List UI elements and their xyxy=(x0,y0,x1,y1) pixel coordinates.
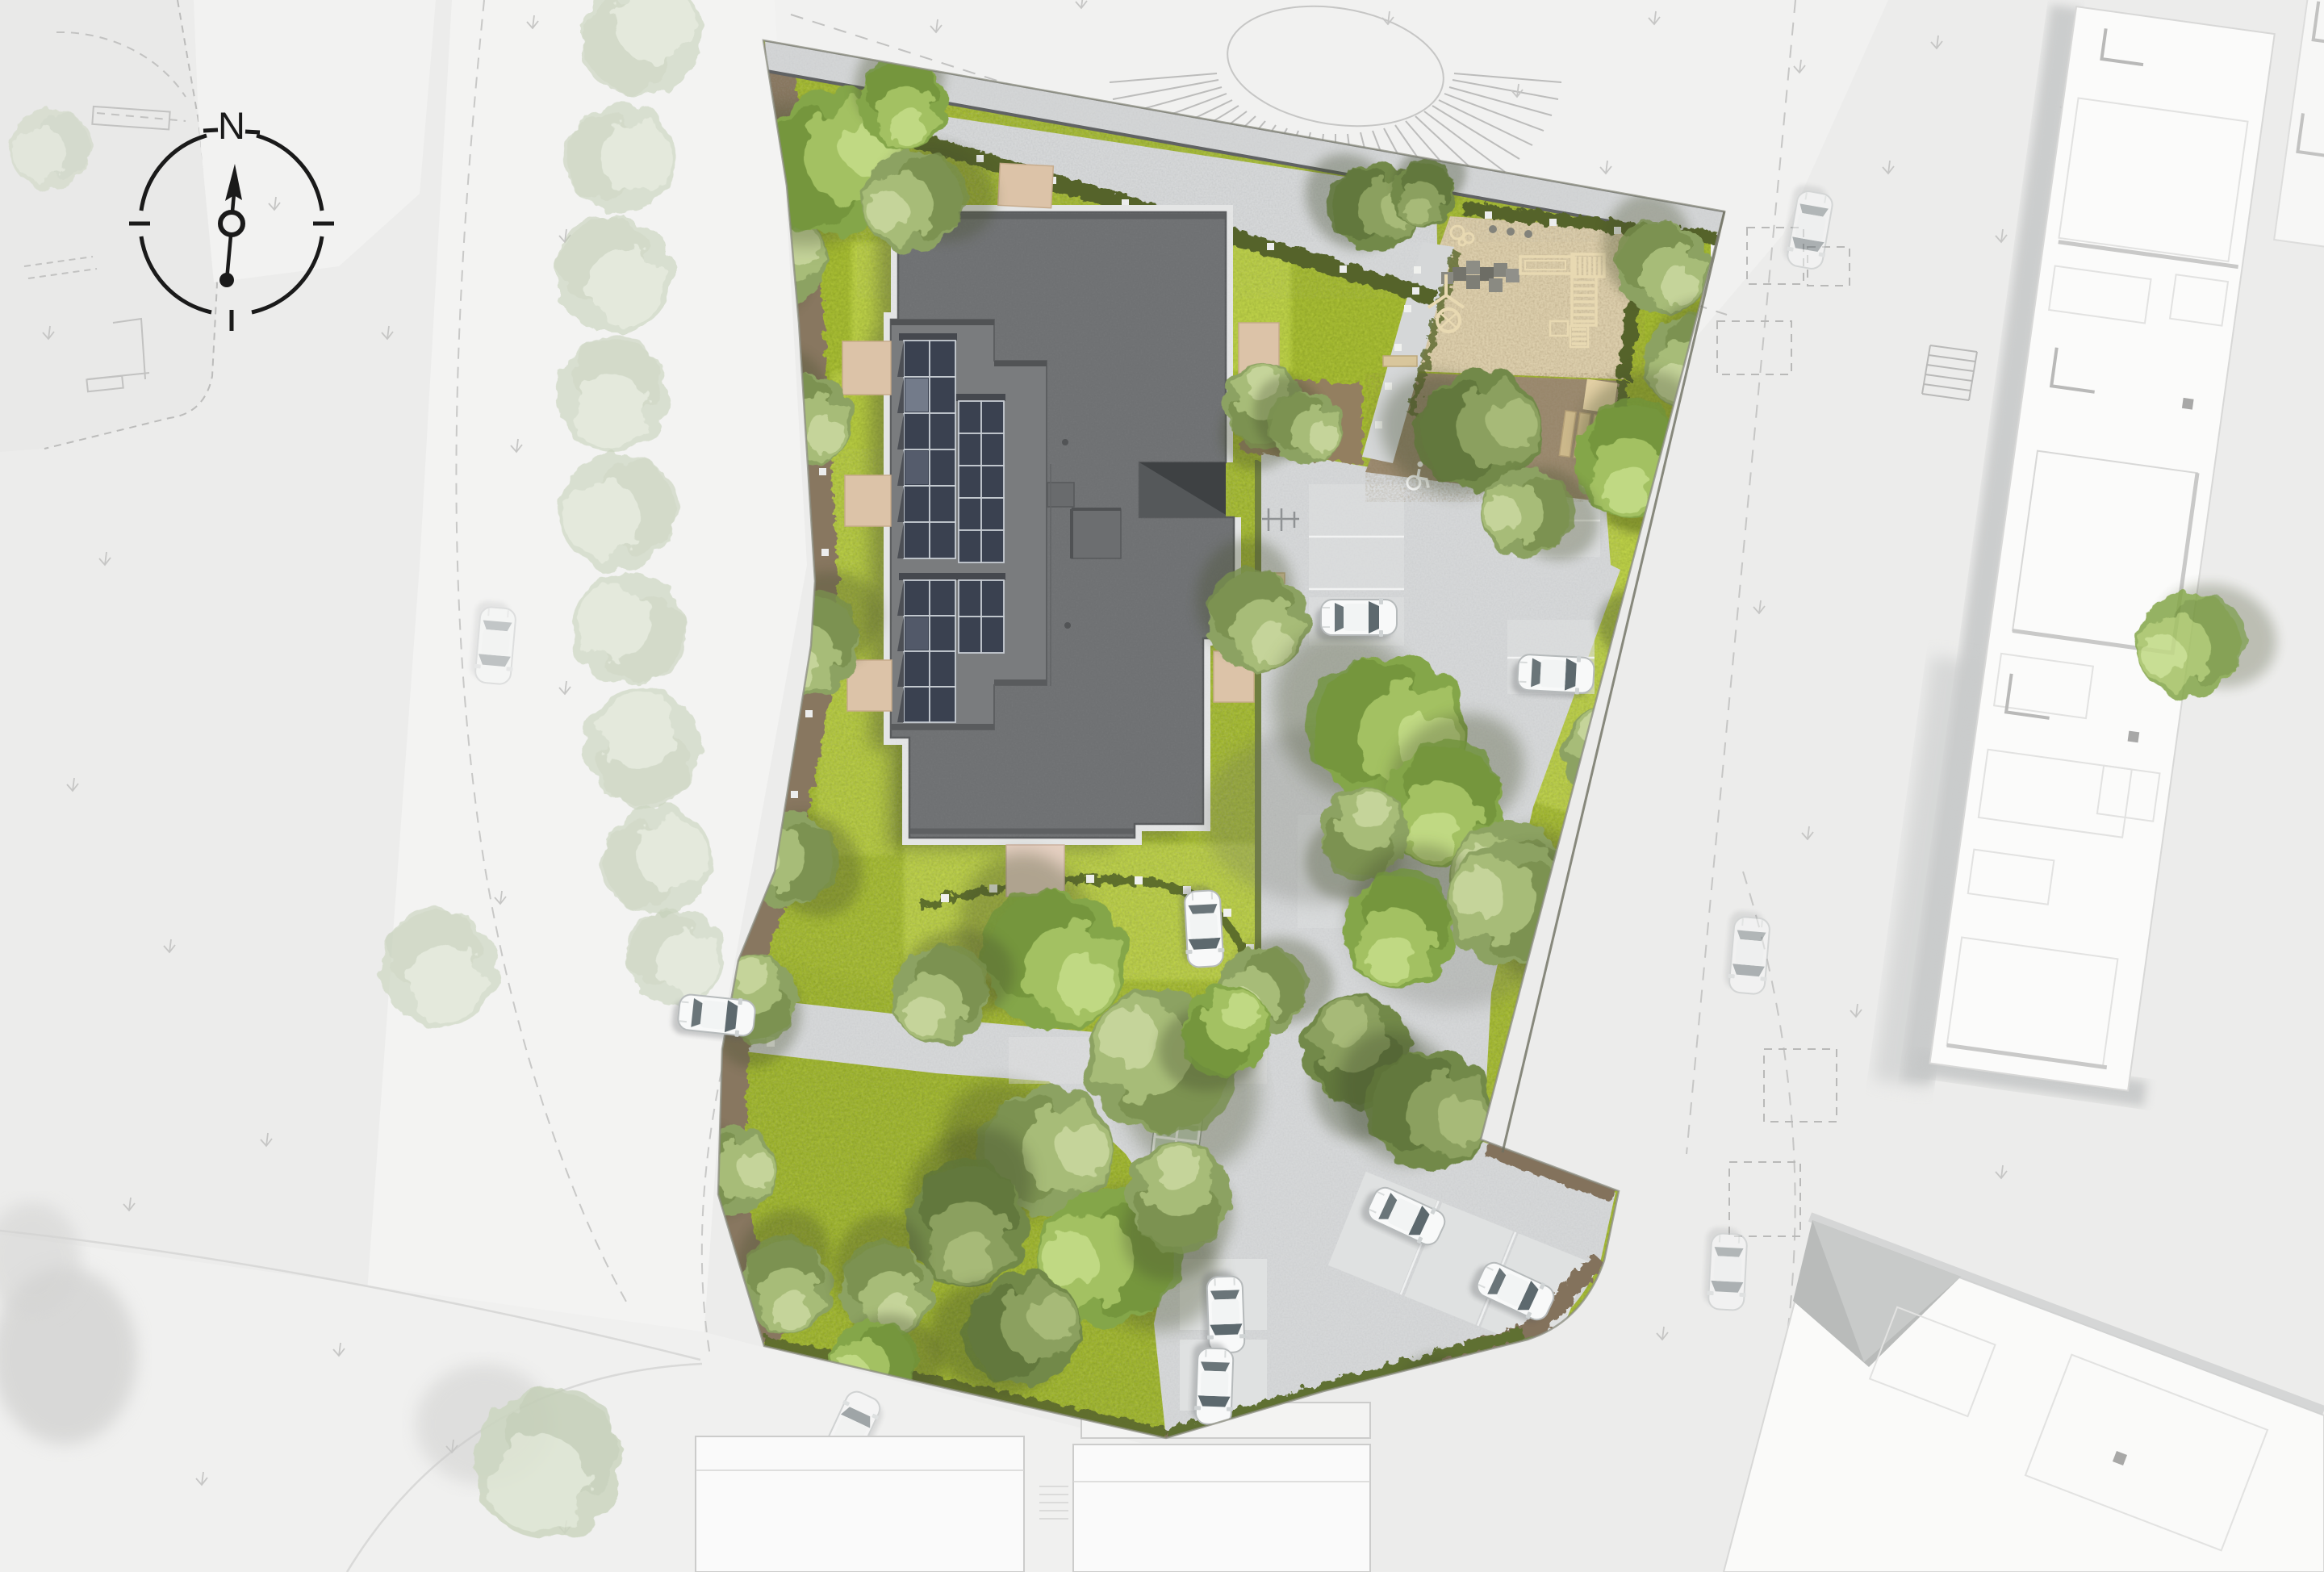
svg-text:N: N xyxy=(218,104,245,147)
